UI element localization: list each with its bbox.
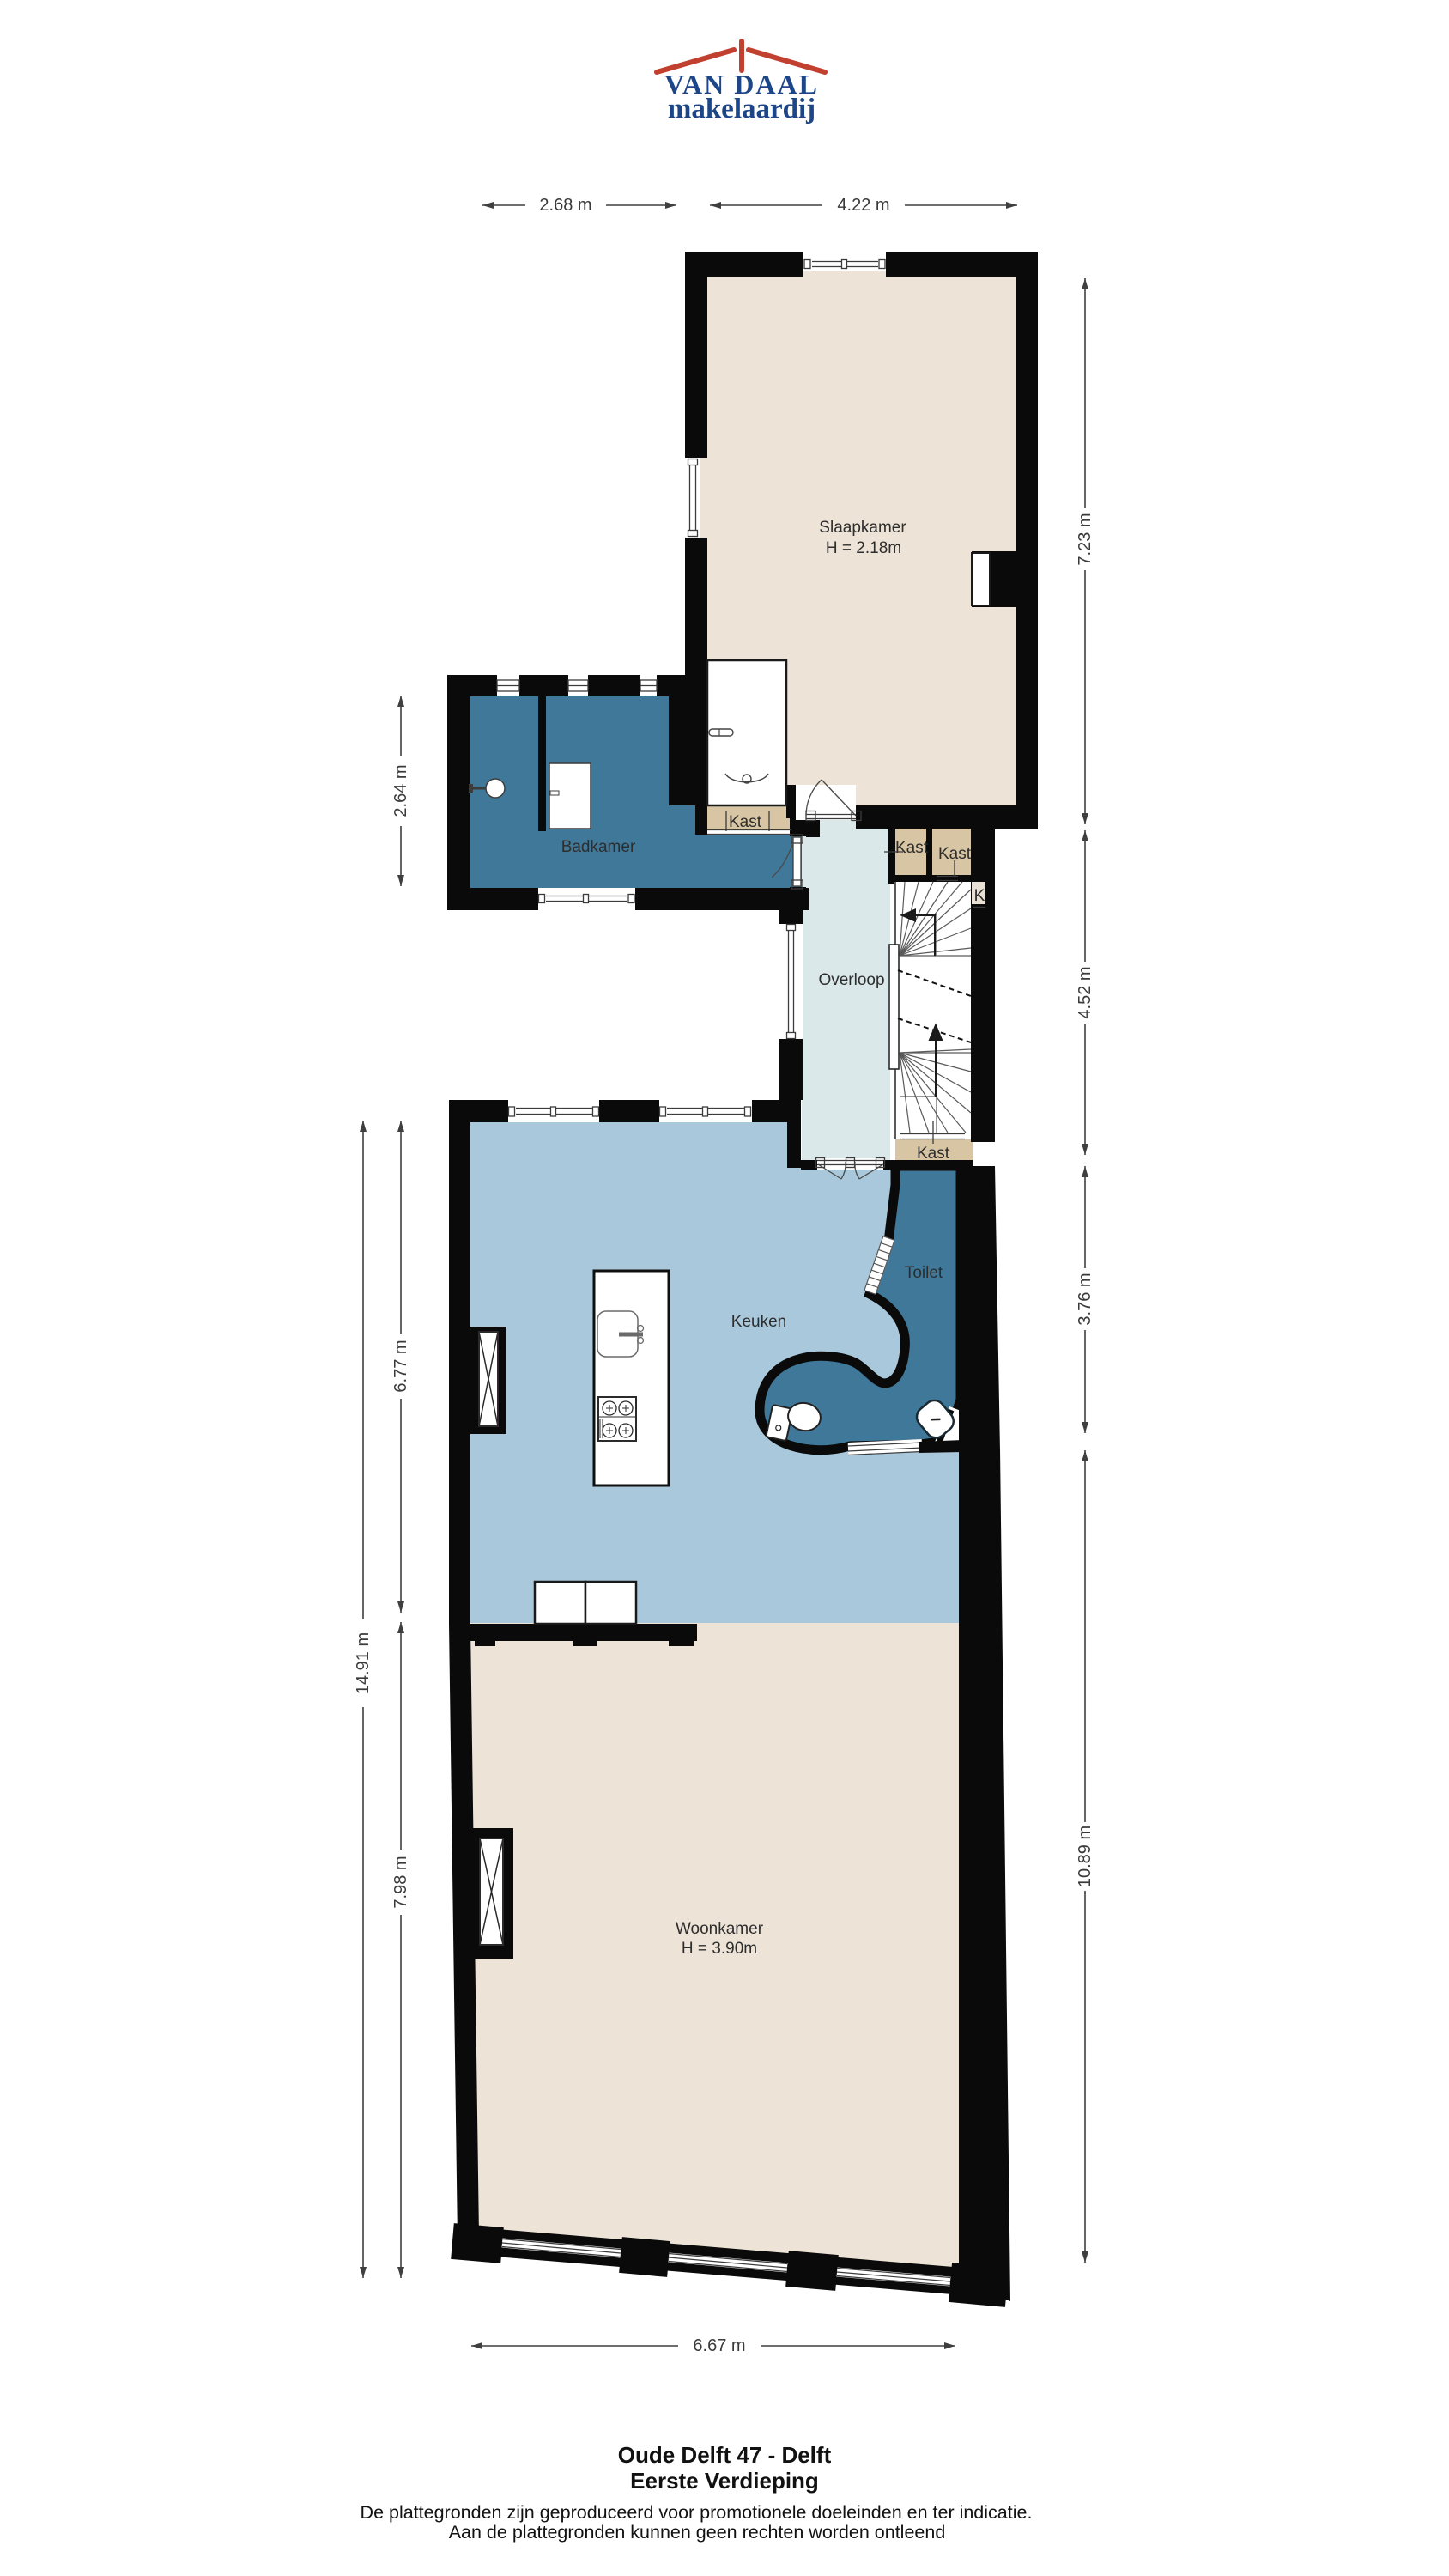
svg-text:2.68 m: 2.68 m [539, 196, 591, 215]
svg-text:7.98 m: 7.98 m [391, 1856, 410, 1908]
svg-text:3.76 m: 3.76 m [1076, 1273, 1094, 1325]
svg-text:Eerste Verdieping: Eerste Verdieping [630, 2468, 819, 2494]
svg-text:7.23 m: 7.23 m [1076, 513, 1094, 565]
svg-text:Aan de plattegronden kunnen ge: Aan de plattegronden kunnen geen rechten… [449, 2522, 946, 2543]
svg-text:Oude Delft 47 - Delft: Oude Delft 47 - Delft [618, 2442, 832, 2468]
svg-text:4.52 m: 4.52 m [1076, 966, 1094, 1018]
svg-text:makelaardij: makelaardij [668, 94, 815, 125]
svg-text:10.89 m: 10.89 m [1076, 1826, 1094, 1887]
svg-text:Badkamer: Badkamer [561, 838, 636, 856]
svg-text:14.91 m: 14.91 m [354, 1632, 373, 1694]
svg-text:2.64 m: 2.64 m [391, 764, 410, 817]
svg-text:Woonkamer: Woonkamer [676, 1920, 764, 1938]
svg-text:Keuken: Keuken [731, 1313, 786, 1331]
svg-text:6.67 m: 6.67 m [693, 2336, 745, 2355]
svg-text:Slaapkamer: Slaapkamer [819, 519, 906, 537]
svg-text:Toilet: Toilet [905, 1264, 943, 1282]
svg-text:Kast: Kast [917, 1145, 950, 1163]
svg-text:Kast: Kast [895, 839, 929, 857]
svg-text:De plattegronden zijn geproduc: De plattegronden zijn geproduceerd voor … [361, 2502, 1033, 2523]
svg-text:4.22 m: 4.22 m [837, 196, 889, 215]
svg-text:6.77 m: 6.77 m [391, 1340, 410, 1392]
svg-text:Overloop: Overloop [818, 971, 884, 989]
svg-text:K: K [974, 887, 985, 905]
svg-text:H = 3.90m: H = 3.90m [682, 1940, 757, 1958]
svg-text:Kast: Kast [729, 813, 762, 831]
svg-text:Kast: Kast [938, 845, 972, 863]
svg-text:H = 2.18m: H = 2.18m [826, 539, 901, 557]
